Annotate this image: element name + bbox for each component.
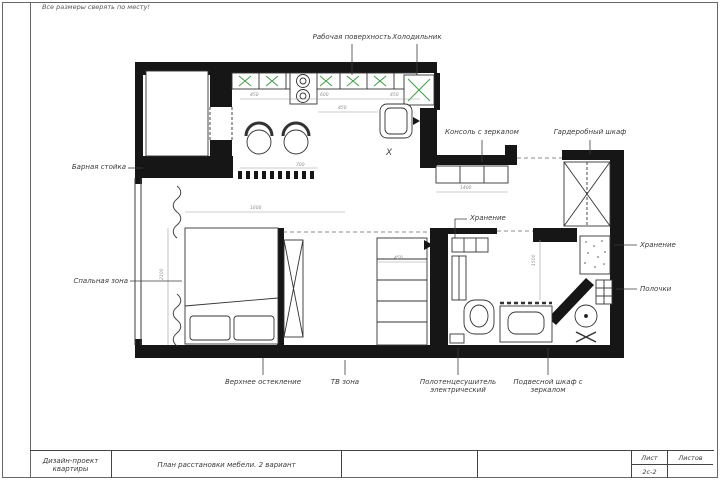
curtain-icon bbox=[173, 186, 181, 346]
furniture-layer bbox=[146, 71, 612, 345]
sheet-number: 2с-2 bbox=[632, 465, 667, 478]
label-shelves: Полочки bbox=[640, 285, 671, 293]
label-towel: Полотенцесушитель электрический bbox=[408, 378, 508, 394]
floor-plan bbox=[0, 0, 720, 480]
closet bbox=[146, 71, 208, 156]
dimension-value: 2100 bbox=[160, 269, 165, 280]
title-block-sheet-title: План расстановки мебели. 2 вариант bbox=[112, 451, 342, 478]
console-table bbox=[436, 166, 508, 183]
dimension-value: 450 bbox=[394, 256, 403, 261]
label-wardrobe: Гардеробный шкаф bbox=[540, 128, 640, 136]
title-block: Дизайн-проект квартиры План расстановки … bbox=[30, 450, 714, 478]
bar-stool-icon bbox=[247, 130, 271, 154]
title-block-sheets-cell: Листов bbox=[668, 451, 713, 478]
pillow-icon bbox=[190, 316, 230, 340]
bar-counter-hatch bbox=[238, 171, 314, 179]
label-fridge: Холодильник bbox=[377, 33, 457, 41]
dimension-value: 1600 bbox=[250, 206, 261, 211]
label-hanging-cabinet: Подвесной шкаф с зеркалом bbox=[498, 378, 598, 394]
label-console: Консоль с зеркалом bbox=[432, 128, 532, 136]
title-block-project: Дизайн-проект квартиры bbox=[30, 451, 112, 478]
label-sleeping: Спальная зона bbox=[48, 277, 128, 285]
sheets-number bbox=[668, 465, 713, 478]
kitchen-counter bbox=[232, 73, 417, 89]
title-block-empty-1 bbox=[342, 451, 478, 478]
tv-cabinet bbox=[377, 238, 427, 345]
dimension-value: 450 bbox=[338, 106, 347, 111]
storage-shelf bbox=[452, 238, 488, 252]
sheets-label: Листов bbox=[668, 451, 713, 465]
label-tv: ТВ зона bbox=[315, 378, 375, 386]
title-block-sheet-cell: Лист 2с-2 bbox=[632, 451, 668, 478]
dimension-value: 450 bbox=[390, 93, 399, 98]
dimension-value: 1500 bbox=[532, 255, 537, 266]
window-wall bbox=[135, 178, 141, 345]
drawing-sheet: Все размеры сверять по месту! bbox=[0, 0, 720, 480]
dimension-value: 700 bbox=[296, 163, 305, 168]
dimension-value: 600 bbox=[320, 93, 329, 98]
sheet-label: Лист bbox=[632, 451, 667, 465]
bar-stool-icon bbox=[284, 130, 308, 154]
label-bar: Барная стойка bbox=[46, 163, 126, 171]
x-symbol: X bbox=[386, 148, 392, 158]
dimension-value: 450 bbox=[250, 93, 259, 98]
label-glazing: Верхнее остекление bbox=[213, 378, 313, 386]
label-storage-right: Хранение bbox=[640, 241, 676, 249]
dashed-openings bbox=[283, 158, 562, 232]
title-block-empty-2 bbox=[478, 451, 632, 478]
pillow-icon bbox=[234, 316, 274, 340]
label-storage-top: Хранение bbox=[470, 214, 506, 222]
towel-rail-icon bbox=[450, 334, 464, 343]
dimension-value: 1400 bbox=[460, 186, 471, 191]
storage-box bbox=[580, 236, 610, 274]
